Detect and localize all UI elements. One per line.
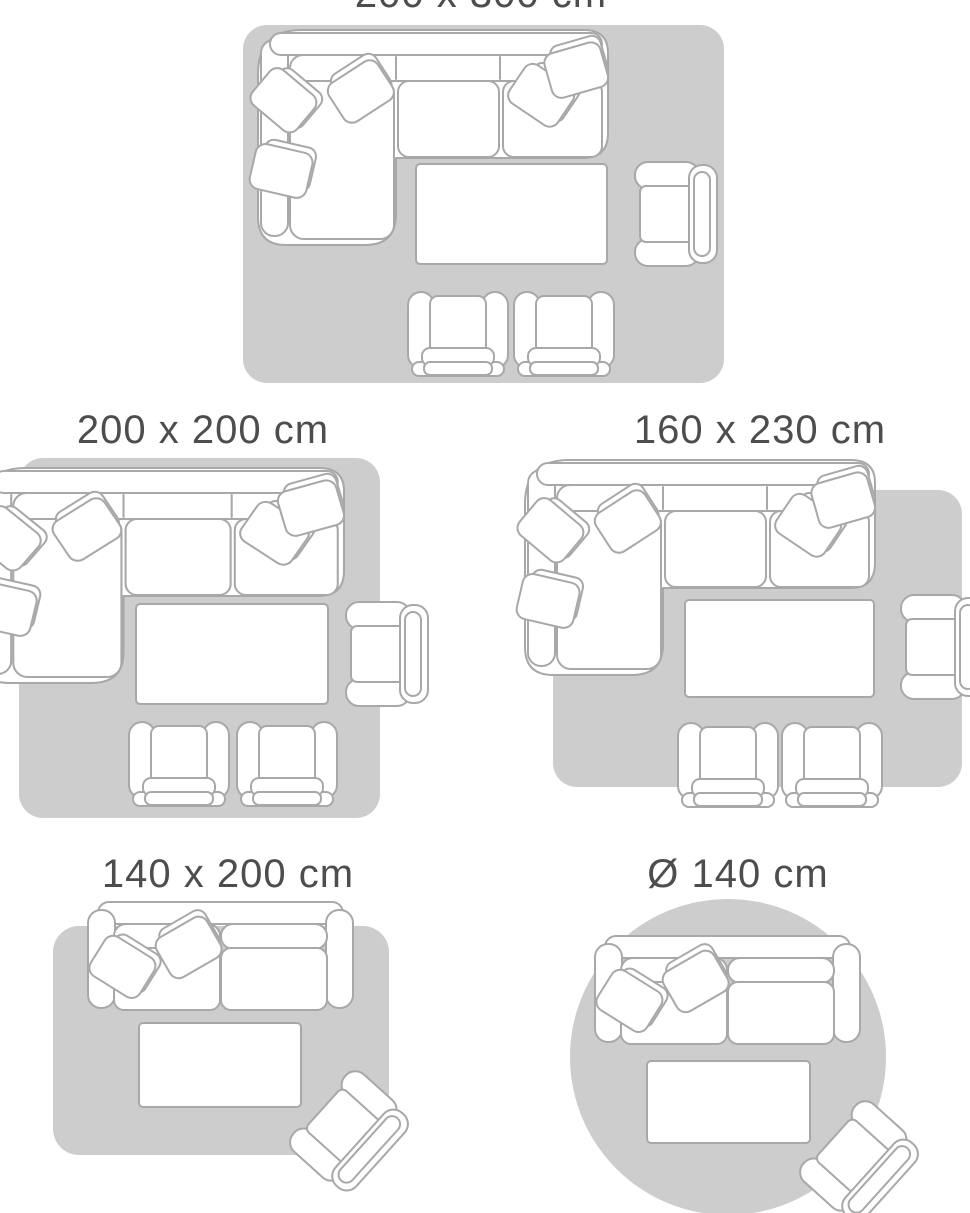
armchair [408,292,508,376]
coffee-table [685,600,874,697]
panel-round-140 [570,899,925,1213]
panel-140x200 [53,902,415,1198]
coffee-table [416,164,607,264]
rug-size-guide: 200 x 300 cm 200 x 200 cm 160 x 230 cm 1… [0,0,970,1213]
armchair [237,722,337,806]
armchair [635,162,717,266]
panel-200x200 [0,458,428,818]
coffee-table [647,1061,810,1143]
two-seater-sofa [593,936,860,1044]
two-seater-sofa [86,902,353,1010]
coffee-table [139,1023,301,1107]
armchair [514,292,614,376]
armchair [901,595,970,699]
panel-200x300 [243,25,724,383]
armchair [346,602,428,706]
panel-160x230 [513,460,970,807]
armchair [678,723,778,807]
armchair [129,722,229,806]
armchair [782,723,882,807]
size-guide-illustration [0,0,970,1213]
coffee-table [136,604,328,704]
